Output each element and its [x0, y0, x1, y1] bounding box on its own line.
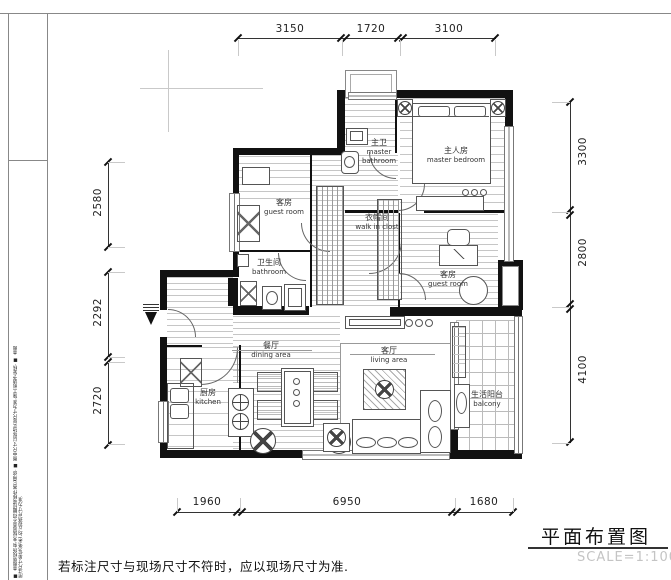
extension-line: [108, 162, 125, 163]
ceiling-fan-icon: [375, 380, 394, 399]
dimension-label: 2720: [92, 386, 104, 415]
dimension-label: 2800: [577, 238, 589, 267]
entry-arrow-line: [143, 307, 159, 308]
room-name-en: master bedroom: [408, 156, 504, 165]
window: [348, 92, 397, 100]
tv: [349, 319, 401, 326]
burner-icon: [232, 413, 249, 430]
extension-line: [455, 498, 456, 512]
dimension-tick: [566, 438, 574, 446]
dining-chair: [313, 372, 338, 392]
decor-item: [462, 189, 469, 196]
dresser: [416, 196, 484, 211]
entry-arrow-line: [143, 310, 159, 311]
room-label-guest-room: 客房 guest room: [244, 198, 324, 217]
room-name-en: living area: [344, 356, 434, 365]
frame-top-line: [0, 13, 671, 14]
room-name-zh: 主人房: [408, 146, 504, 156]
lamp-icon: [398, 101, 412, 115]
dimension-tick: [104, 441, 112, 449]
room-label-walk-in-closet: 衣帽间 walk in clost: [335, 213, 419, 232]
dimension-line: [108, 162, 109, 248]
partition-wall: [310, 252, 312, 307]
window: [504, 126, 514, 262]
room-name-zh: 生活阳台: [460, 390, 514, 400]
extension-line: [513, 498, 514, 512]
room-name-zh: 厨房: [178, 388, 238, 398]
dimension-line: [570, 102, 571, 443]
room-label-balcony: 生活阳台 balcony: [460, 390, 514, 409]
bay-window-inner: [350, 74, 392, 94]
wall: [160, 277, 167, 310]
room-label-living: 客厅 living area: [344, 346, 434, 365]
dimension-label: 1960: [193, 496, 222, 508]
sheet-side-notes: ■ 本图版权所有,未经同意不得翻印或移作其它用途. ■ 图中尺寸以现场实际尺寸为…: [13, 342, 24, 578]
extension-line: [177, 498, 178, 512]
shower-tray: [288, 288, 302, 307]
footer-note: 若标注尺寸与现场尺寸不符时，应以现场尺寸为准.: [58, 556, 348, 575]
balcony-railing: [514, 316, 523, 454]
crosshair-horizontal: [140, 88, 263, 89]
wall: [160, 270, 238, 277]
room-label-guest-room-2: 客房 guest room: [408, 270, 488, 289]
room-label-master-bedroom: 主人房 master bedroom: [408, 146, 504, 165]
wall: [160, 450, 302, 458]
wall: [448, 450, 522, 459]
sofa-cushion: [398, 437, 418, 448]
toilet-bowl: [266, 291, 278, 305]
room-name-zh: 客房: [408, 270, 488, 280]
extension-line: [552, 307, 570, 308]
room-label-master-bathroom: 主卫 master bathroom: [351, 138, 407, 166]
room-name-zh: 衣帽间: [335, 213, 419, 223]
dimension-label: 4100: [577, 355, 589, 384]
dimension-label: 1720: [357, 23, 386, 35]
dimension-label: 3100: [435, 23, 464, 35]
drawing-scale: SCALE=1:100: [577, 550, 671, 565]
room-label-bathroom: 卫生间 bathroom: [234, 258, 304, 277]
entry-arrow-line: [143, 304, 159, 305]
decor-item: [293, 378, 300, 385]
plant-pot: [250, 428, 276, 454]
extension-line: [238, 40, 239, 56]
extension-line: [240, 498, 241, 512]
dining-chair: [313, 400, 338, 420]
label-leader-line: [350, 354, 435, 355]
chair: [447, 229, 470, 246]
sofa-cushion: [428, 426, 442, 448]
title-underline: [528, 547, 668, 549]
crosshair-vertical: [168, 50, 169, 132]
room-name-en: guest room: [408, 280, 488, 289]
pillow: [454, 106, 486, 117]
extension-line: [495, 40, 496, 56]
decor-item: [471, 189, 478, 196]
dimension-line: [108, 272, 109, 358]
washing-machine: [240, 281, 257, 306]
room-name-en: walk in clost: [335, 223, 419, 232]
wall: [233, 148, 345, 155]
partition-wall: [233, 250, 312, 252]
extension-line: [108, 357, 125, 358]
frame-divider: [8, 160, 47, 161]
dining-chair: [257, 372, 282, 392]
dimension-label: 6950: [333, 496, 362, 508]
dimension-line: [238, 38, 496, 39]
frame-left-line: [8, 13, 9, 580]
room-name-en: balcony: [460, 400, 514, 409]
decor-item: [293, 389, 300, 396]
room-name-en: kitchen: [178, 398, 238, 407]
extension-line: [400, 40, 401, 56]
wall: [395, 90, 513, 98]
extension-line: [108, 272, 125, 273]
lamp-icon: [491, 101, 505, 115]
extension-line: [342, 40, 343, 56]
dimension-label: 2580: [92, 188, 104, 217]
decor-item: [425, 319, 433, 327]
extension-line: [552, 102, 570, 103]
balcony-shelf: [452, 326, 466, 378]
extension-line: [552, 212, 570, 213]
room-name-zh: 卫生间: [234, 258, 304, 268]
sofa-cushion: [356, 437, 376, 448]
dimension-label: 3150: [276, 23, 305, 35]
dimension-line: [108, 362, 109, 445]
entry-arrow-icon: [145, 312, 157, 325]
room-name-en: bathroom: [234, 268, 304, 277]
label-leader-line: [232, 350, 312, 351]
extension-line: [108, 362, 125, 363]
decor-item: [480, 189, 487, 196]
frame-inner-line: [47, 13, 48, 580]
side-table-top: [327, 428, 346, 447]
drawing-title: 平面布置图: [541, 522, 651, 549]
extension-line: [108, 247, 125, 248]
drawing-sheet: { "drawing": { "title": "平面布置图", "scale"…: [0, 0, 671, 580]
wall: [505, 90, 513, 126]
room-name-zh: 客房: [244, 198, 324, 208]
dimension-label: 2292: [92, 298, 104, 327]
wall: [228, 278, 238, 306]
kitchen-cabinet: [180, 358, 202, 387]
dimension-line: [177, 512, 514, 513]
dimension-label: 3300: [577, 137, 589, 166]
dimension-label: 1680: [470, 496, 499, 508]
desk: [242, 167, 270, 185]
pillow: [418, 106, 450, 117]
dining-chair: [257, 400, 282, 420]
decor-item: [415, 319, 423, 327]
wall: [390, 307, 522, 316]
decor-item: [293, 400, 300, 407]
extension-line: [108, 444, 125, 445]
wall: [233, 148, 239, 193]
sofa-cushion: [428, 400, 442, 422]
wall: [337, 90, 345, 155]
partition-wall: [160, 345, 202, 347]
room-label-kitchen: 厨房 kitchen: [178, 388, 238, 407]
extension-line: [552, 443, 570, 444]
partition-wall: [398, 300, 400, 309]
window: [502, 266, 519, 306]
room-name-en: master bathroom: [351, 148, 407, 166]
pen-icon: [452, 249, 466, 259]
decor-item: [405, 319, 413, 327]
room-name-zh: 主卫: [351, 138, 407, 148]
room-name-en: dining area: [226, 351, 316, 360]
room-name-en: guest room: [244, 208, 324, 217]
sofa-cushion: [377, 437, 397, 448]
